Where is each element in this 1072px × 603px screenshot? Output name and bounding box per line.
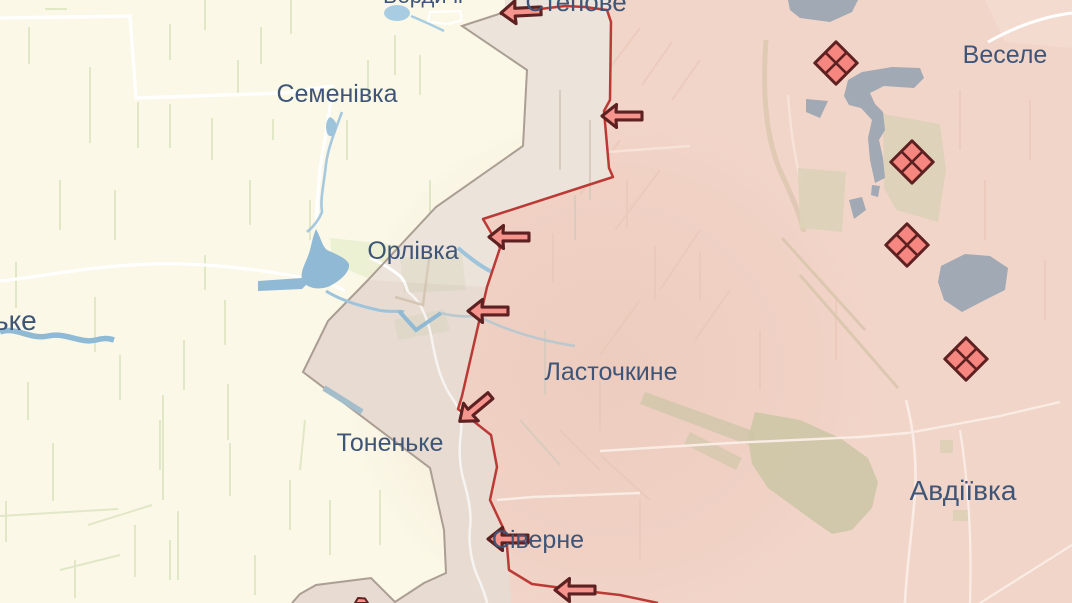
svg-text:Тоненьке: Тоненьке	[337, 429, 444, 457]
svg-text:Бердичі: Бердичі	[383, 0, 463, 8]
svg-text:Авдіївка: Авдіївка	[910, 475, 1017, 506]
svg-text:ьке: ьке	[0, 305, 37, 336]
svg-text:Семенівка: Семенівка	[276, 80, 397, 108]
svg-text:Веселе: Веселе	[963, 41, 1048, 69]
svg-text:Сіверне: Сіверне	[492, 526, 584, 554]
svg-text:Орлівка: Орлівка	[367, 237, 458, 265]
svg-text:Ласточкине: Ласточкине	[545, 358, 678, 386]
svg-text:Степове: Степове	[525, 0, 626, 17]
